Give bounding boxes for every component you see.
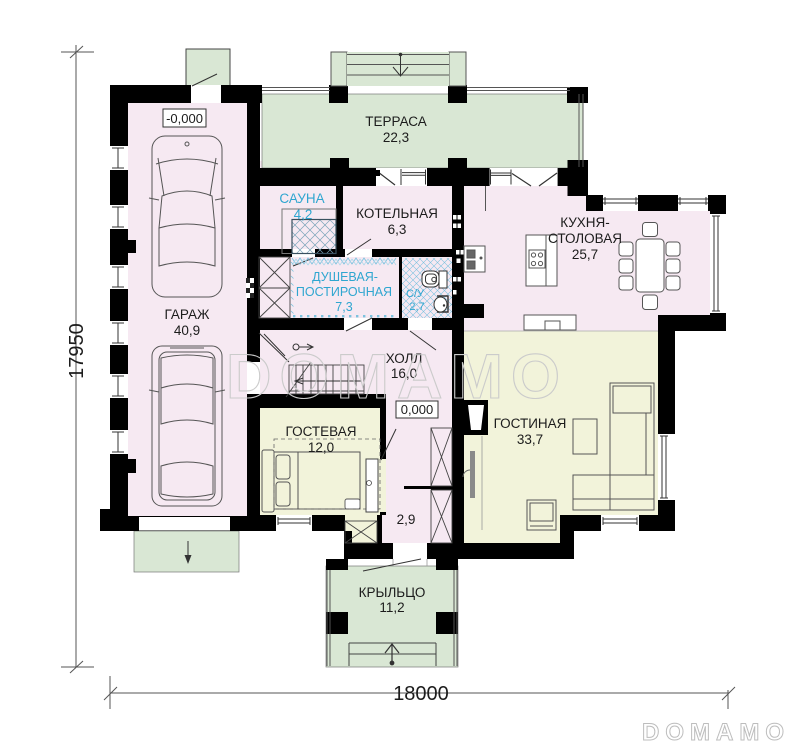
svg-text:2,9: 2,9 [397,512,416,527]
svg-text:DOMAMO: DOMAMO [642,719,790,746]
svg-text:18000: 18000 [393,683,449,705]
svg-text:СТОЛОВАЯ: СТОЛОВАЯ [548,231,622,246]
svg-text:40,9: 40,9 [174,323,200,338]
svg-text:КРЫЛЬЦО: КРЫЛЬЦО [359,585,426,600]
svg-text:7,3: 7,3 [335,300,352,314]
svg-text:ДУШЕВАЯ-: ДУШЕВАЯ- [312,270,378,284]
svg-text:12,0: 12,0 [308,440,334,455]
svg-text:ПОСТИРОЧНАЯ: ПОСТИРОЧНАЯ [296,285,392,299]
svg-text:17950: 17950 [66,323,88,379]
svg-text:ГАРАЖ: ГАРАЖ [165,307,211,322]
svg-text:33,7: 33,7 [517,432,543,447]
svg-text:4,2: 4,2 [294,207,313,222]
svg-text:КОТЕЛЬНАЯ: КОТЕЛЬНАЯ [356,206,438,221]
svg-text:25,7: 25,7 [572,247,598,262]
svg-text:2,7: 2,7 [409,301,424,313]
svg-text:САУНА: САУНА [279,191,324,206]
svg-text:ТЕРРАСА: ТЕРРАСА [365,114,427,129]
svg-text:6,3: 6,3 [388,222,407,237]
svg-text:КУХНЯ-: КУХНЯ- [560,215,610,230]
svg-text:DOMAMO: DOMAMO [226,342,568,412]
svg-text:ГОСТЕВАЯ: ГОСТЕВАЯ [286,424,357,439]
svg-text:11,2: 11,2 [379,600,404,615]
svg-text:-0,000: -0,000 [166,111,203,126]
svg-text:С/У: С/У [406,288,425,300]
svg-text:ГОСТИНАЯ: ГОСТИНАЯ [494,416,567,431]
svg-text:22,3: 22,3 [383,130,409,145]
